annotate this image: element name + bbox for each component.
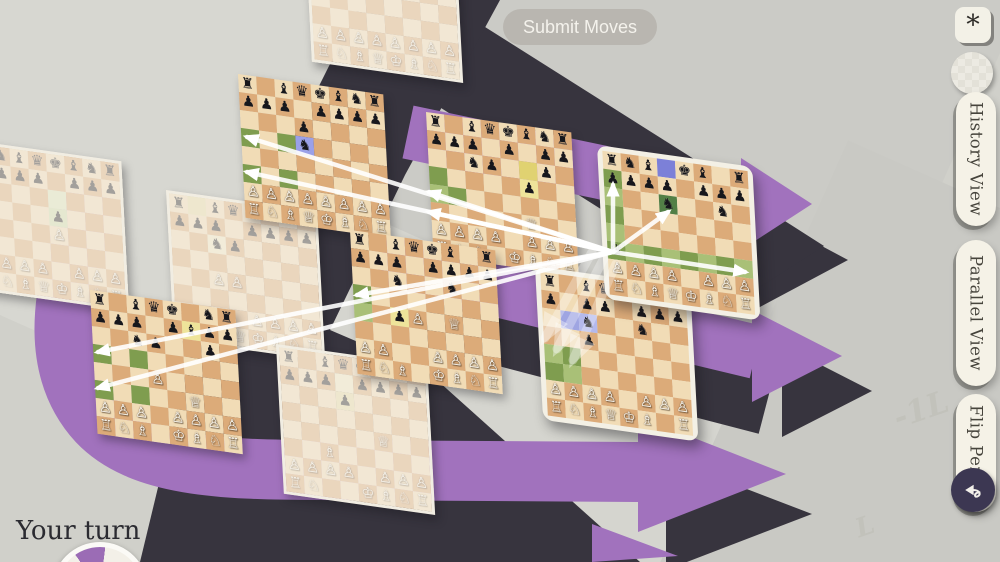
white-piece[interactable]: ♙ xyxy=(485,358,499,374)
black-piece[interactable]: ♜ xyxy=(103,163,117,179)
black-piece[interactable]: ♟ xyxy=(444,263,458,279)
white-piece[interactable]: ♙ xyxy=(287,457,301,473)
board-square[interactable] xyxy=(0,218,14,239)
black-piece[interactable]: ♟ xyxy=(582,333,596,349)
white-piece[interactable]: ♙ xyxy=(720,276,734,292)
white-piece[interactable]: ♙ xyxy=(324,462,338,478)
black-piece[interactable]: ♞ xyxy=(350,91,364,107)
chess-board[interactable]: ♜♝♛♚♞♜♟♟♟♟♝♟♟♞♟♟♙♕♙♙♙♙♙♙♙♖♘♗♔♗♘♖ xyxy=(90,290,243,454)
white-piece[interactable]: ♗ xyxy=(323,445,337,461)
white-piece[interactable]: ♙ xyxy=(207,415,221,431)
board-square[interactable]: ♗ xyxy=(71,282,90,303)
board-square[interactable]: ♖ xyxy=(357,356,376,377)
chess-board[interactable]: ♜♝♛♚♝♞♜♟♟♟♟♟♟♟♟♞♙♙♙♙♙♙♙♙♖♘♗♕♔♗♘♖ xyxy=(238,74,391,238)
white-piece[interactable]: ♗ xyxy=(526,253,540,269)
white-piece[interactable]: ♙ xyxy=(647,266,661,282)
white-piece[interactable]: ♙ xyxy=(424,41,438,57)
white-piece[interactable]: ♖ xyxy=(444,61,458,77)
white-piece[interactable]: ♘ xyxy=(720,294,734,310)
white-piece[interactable]: ♕ xyxy=(371,51,385,67)
black-piece[interactable]: ♜ xyxy=(480,250,494,266)
black-piece[interactable]: ♟ xyxy=(598,299,612,315)
black-piece[interactable]: ♝ xyxy=(129,297,143,313)
board-square[interactable]: ♕ xyxy=(663,284,682,305)
white-piece[interactable]: ♘ xyxy=(1,274,15,290)
black-piece[interactable]: ♜ xyxy=(93,292,107,308)
white-piece[interactable]: ♗ xyxy=(73,284,87,300)
black-piece[interactable]: ♛ xyxy=(147,300,161,316)
white-piece[interactable]: ♙ xyxy=(471,227,485,243)
black-piece[interactable]: ♚ xyxy=(313,86,327,102)
black-piece[interactable]: ♚ xyxy=(165,302,179,318)
black-piece[interactable]: ♟ xyxy=(203,325,217,341)
white-piece[interactable]: ♗ xyxy=(136,423,150,439)
white-piece[interactable]: ♖ xyxy=(612,279,626,295)
black-piece[interactable]: ♟ xyxy=(466,137,480,153)
black-piece[interactable]: ♟ xyxy=(448,135,462,151)
white-piece[interactable]: ♕ xyxy=(604,407,618,423)
parallel-view-button[interactable]: Parallel View xyxy=(956,240,996,386)
board-square[interactable]: ♖ xyxy=(674,415,693,436)
white-piece[interactable]: ♙ xyxy=(171,410,185,426)
black-piece[interactable]: ♜ xyxy=(543,274,557,290)
black-piece[interactable]: ♝ xyxy=(67,158,81,174)
white-piece[interactable]: ♙ xyxy=(585,387,599,403)
black-piece[interactable]: ♜ xyxy=(220,310,234,326)
board-square[interactable]: ♖ xyxy=(413,491,432,512)
white-piece[interactable]: ♙ xyxy=(665,268,679,284)
white-piece[interactable]: ♕ xyxy=(447,317,461,333)
black-piece[interactable]: ♚ xyxy=(48,156,62,172)
black-piece[interactable]: ♟ xyxy=(283,367,297,383)
black-piece[interactable]: ♟ xyxy=(338,393,352,409)
black-piece[interactable]: ♞ xyxy=(0,148,8,164)
white-piece[interactable]: ♙ xyxy=(701,273,715,289)
white-piece[interactable]: ♙ xyxy=(411,312,425,328)
board-square[interactable]: ♘ xyxy=(565,400,584,421)
white-piece[interactable]: ♙ xyxy=(36,261,50,277)
black-piece[interactable]: ♟ xyxy=(242,94,256,110)
black-piece[interactable]: ♜ xyxy=(172,196,186,212)
white-piece[interactable]: ♙ xyxy=(98,400,112,416)
white-piece[interactable]: ♙ xyxy=(629,263,643,279)
white-piece[interactable]: ♙ xyxy=(543,237,557,253)
white-piece[interactable]: ♙ xyxy=(246,184,260,200)
white-piece[interactable]: ♙ xyxy=(567,384,581,400)
black-piece[interactable]: ♟ xyxy=(653,307,667,323)
board-square[interactable]: ♔ xyxy=(317,210,336,231)
history-view-button[interactable]: History View xyxy=(956,92,996,226)
white-piece[interactable]: ♙ xyxy=(305,321,319,337)
black-piece[interactable]: ♟ xyxy=(522,181,536,197)
board-square[interactable]: ♗ xyxy=(133,421,152,442)
white-piece[interactable]: ♔ xyxy=(320,212,334,228)
board-square[interactable]: ♘ xyxy=(466,371,485,392)
black-piece[interactable]: ♟ xyxy=(301,370,315,386)
white-piece[interactable]: ♙ xyxy=(301,192,315,208)
black-piece[interactable]: ♝ xyxy=(519,127,533,143)
black-piece[interactable]: ♟ xyxy=(733,189,747,205)
black-piece[interactable]: ♝ xyxy=(579,279,593,295)
white-piece[interactable]: ♘ xyxy=(630,281,644,297)
black-piece[interactable]: ♟ xyxy=(463,265,477,281)
board-square[interactable]: ♖ xyxy=(484,374,503,395)
white-piece[interactable]: ♘ xyxy=(117,420,131,436)
board-square[interactable]: ♔ xyxy=(248,329,267,350)
board-square[interactable]: ♘ xyxy=(395,489,414,510)
board-square[interactable]: ♕ xyxy=(601,405,620,426)
black-piece[interactable]: ♟ xyxy=(660,178,674,194)
black-piece[interactable]: ♞ xyxy=(131,333,145,349)
white-piece[interactable]: ♔ xyxy=(55,282,69,298)
black-piece[interactable]: ♟ xyxy=(245,224,259,240)
board-square[interactable]: ♗ xyxy=(281,205,300,226)
black-piece[interactable]: ♟ xyxy=(191,216,205,232)
black-piece[interactable]: ♟ xyxy=(314,104,328,120)
white-piece[interactable]: ♖ xyxy=(486,376,500,392)
black-piece[interactable]: ♞ xyxy=(210,237,224,253)
black-piece[interactable]: ♟ xyxy=(354,250,368,266)
white-piece[interactable]: ♙ xyxy=(658,397,672,413)
board-square[interactable]: ♘ xyxy=(0,272,17,293)
black-piece[interactable]: ♟ xyxy=(0,166,9,182)
black-piece[interactable]: ♟ xyxy=(166,320,180,336)
white-piece[interactable]: ♔ xyxy=(684,289,698,305)
white-piece[interactable]: ♙ xyxy=(452,225,466,241)
board-square[interactable]: ♘ xyxy=(304,476,323,497)
white-piece[interactable]: ♙ xyxy=(337,197,351,213)
white-piece[interactable]: ♘ xyxy=(265,204,279,220)
black-piece[interactable]: ♟ xyxy=(557,150,571,166)
white-piece[interactable]: ♙ xyxy=(72,266,86,282)
board-square[interactable]: ♗ xyxy=(187,429,206,450)
board-square[interactable]: ♙ xyxy=(0,254,16,275)
white-piece[interactable]: ♗ xyxy=(379,488,393,504)
white-piece[interactable]: ♙ xyxy=(334,28,348,44)
white-piece[interactable]: ♘ xyxy=(307,478,321,494)
board-square[interactable]: ♕ xyxy=(299,207,318,228)
black-piece[interactable]: ♟ xyxy=(392,383,406,399)
black-piece[interactable]: ♟ xyxy=(580,297,594,313)
board-square[interactable]: ♘ xyxy=(423,57,442,78)
black-piece[interactable]: ♞ xyxy=(636,323,650,339)
board-square[interactable]: ♖ xyxy=(245,200,264,221)
black-piece[interactable]: ♞ xyxy=(85,161,99,177)
black-piece[interactable]: ♚ xyxy=(678,163,692,179)
white-piece[interactable]: ♗ xyxy=(450,371,464,387)
checker-circle-button[interactable] xyxy=(951,52,993,94)
black-piece[interactable]: ♝ xyxy=(389,237,403,253)
white-piece[interactable]: ♙ xyxy=(373,202,387,218)
black-piece[interactable]: ♟ xyxy=(203,343,217,359)
black-piece[interactable]: ♞ xyxy=(581,315,595,331)
black-piece[interactable]: ♚ xyxy=(425,242,439,258)
board-square[interactable]: ♔ xyxy=(620,408,639,429)
white-piece[interactable]: ♙ xyxy=(151,372,165,388)
white-piece[interactable]: ♙ xyxy=(315,25,329,41)
black-piece[interactable]: ♛ xyxy=(30,153,44,169)
black-piece[interactable]: ♜ xyxy=(429,114,443,130)
white-piece[interactable]: ♙ xyxy=(449,353,463,369)
black-piece[interactable]: ♟ xyxy=(104,181,118,197)
black-piece[interactable]: ♟ xyxy=(355,378,369,394)
black-piece[interactable]: ♝ xyxy=(465,119,479,135)
black-piece[interactable]: ♟ xyxy=(332,107,346,123)
white-piece[interactable]: ♙ xyxy=(283,189,297,205)
black-piece[interactable]: ♟ xyxy=(642,176,656,192)
white-piece[interactable]: ♙ xyxy=(396,473,410,489)
black-piece[interactable]: ♟ xyxy=(624,173,638,189)
black-piece[interactable]: ♜ xyxy=(732,171,746,187)
white-piece[interactable]: ♙ xyxy=(355,199,369,215)
white-piece[interactable]: ♙ xyxy=(0,256,13,272)
board-square[interactable]: ♗ xyxy=(350,46,369,67)
submit-moves-button[interactable]: Submit Moves xyxy=(503,9,657,45)
board-square[interactable]: ♔ xyxy=(52,279,71,300)
black-piece[interactable]: ♞ xyxy=(391,273,405,289)
board-square[interactable]: ♗ xyxy=(638,410,657,431)
white-piece[interactable]: ♖ xyxy=(226,436,240,452)
white-piece[interactable]: ♗ xyxy=(702,291,716,307)
black-piece[interactable]: ♛ xyxy=(407,240,421,256)
board-square[interactable]: ♗ xyxy=(377,486,396,507)
white-piece[interactable]: ♙ xyxy=(319,194,333,210)
board-square[interactable]: ♗ xyxy=(405,54,424,75)
black-piece[interactable]: ♟ xyxy=(260,97,274,113)
board-square[interactable] xyxy=(656,413,675,434)
board-square[interactable] xyxy=(340,481,359,502)
white-piece[interactable]: ♗ xyxy=(19,276,33,292)
white-piece[interactable]: ♙ xyxy=(342,465,356,481)
white-piece[interactable]: ♙ xyxy=(212,273,226,289)
white-piece[interactable]: ♔ xyxy=(361,486,375,502)
black-piece[interactable]: ♟ xyxy=(544,292,558,308)
board-square[interactable]: ♘ xyxy=(718,292,737,313)
board-square[interactable]: ♔ xyxy=(505,248,524,269)
white-piece[interactable]: ♙ xyxy=(306,460,320,476)
black-piece[interactable]: ♛ xyxy=(483,122,497,138)
board-square[interactable]: ♗ xyxy=(700,289,719,310)
board-square[interactable]: ♘ xyxy=(115,418,134,439)
board-square[interactable]: ♖ xyxy=(441,59,460,80)
white-piece[interactable]: ♗ xyxy=(396,363,410,379)
white-piece[interactable]: ♗ xyxy=(338,215,352,231)
white-piece[interactable]: ♗ xyxy=(648,284,662,300)
black-piece[interactable]: ♞ xyxy=(298,138,312,154)
board-square[interactable] xyxy=(322,478,341,499)
black-piece[interactable]: ♟ xyxy=(430,132,444,148)
menu-asterisk-button[interactable]: * xyxy=(955,7,991,43)
black-piece[interactable]: ♜ xyxy=(368,94,382,110)
black-piece[interactable]: ♞ xyxy=(661,196,675,212)
board-square[interactable] xyxy=(0,236,15,257)
black-piece[interactable]: ♟ xyxy=(149,336,163,352)
white-piece[interactable]: ♗ xyxy=(586,405,600,421)
white-piece[interactable]: ♖ xyxy=(288,475,302,491)
black-piece[interactable]: ♞ xyxy=(716,204,730,220)
white-piece[interactable]: ♖ xyxy=(739,296,753,312)
board-square[interactable]: ♖ xyxy=(97,416,116,437)
black-piece[interactable]: ♜ xyxy=(241,76,255,92)
white-piece[interactable]: ♙ xyxy=(370,33,384,49)
black-piece[interactable]: ♟ xyxy=(369,112,383,128)
board-square[interactable]: ♖ xyxy=(286,473,305,494)
white-piece[interactable]: ♙ xyxy=(230,275,244,291)
white-piece[interactable]: ♗ xyxy=(407,56,421,72)
white-piece[interactable]: ♕ xyxy=(666,286,680,302)
black-piece[interactable]: ♟ xyxy=(282,229,296,245)
white-piece[interactable]: ♙ xyxy=(639,394,653,410)
black-piece[interactable]: ♝ xyxy=(641,158,655,174)
white-piece[interactable]: ♔ xyxy=(622,410,636,426)
black-piece[interactable]: ♟ xyxy=(94,310,108,326)
black-piece[interactable]: ♚ xyxy=(501,124,515,140)
white-piece[interactable]: ♙ xyxy=(225,418,239,434)
white-piece[interactable]: ♘ xyxy=(335,46,349,62)
board-square[interactable]: ♖ xyxy=(547,398,566,419)
black-piece[interactable]: ♟ xyxy=(481,268,495,284)
white-piece[interactable]: ♙ xyxy=(406,38,420,54)
white-piece[interactable]: ♙ xyxy=(415,475,429,491)
black-piece[interactable]: ♟ xyxy=(297,120,311,136)
black-piece[interactable]: ♟ xyxy=(715,186,729,202)
white-piece[interactable]: ♙ xyxy=(376,343,390,359)
white-piece[interactable]: ♙ xyxy=(611,261,625,277)
black-piece[interactable]: ♟ xyxy=(13,169,27,185)
white-piece[interactable]: ♙ xyxy=(434,222,448,238)
white-piece[interactable]: ♔ xyxy=(508,250,522,266)
black-piece[interactable]: ♟ xyxy=(671,310,685,326)
black-piece[interactable]: ♟ xyxy=(351,109,365,125)
white-piece[interactable]: ♙ xyxy=(676,400,690,416)
black-piece[interactable]: ♟ xyxy=(130,315,144,331)
white-piece[interactable]: ♙ xyxy=(603,389,617,405)
black-piece[interactable]: ♝ xyxy=(208,201,222,217)
white-piece[interactable]: ♙ xyxy=(561,240,575,256)
board-square[interactable]: ♗ xyxy=(583,403,602,424)
black-piece[interactable]: ♟ xyxy=(635,305,649,321)
white-piece[interactable]: ♖ xyxy=(550,400,564,416)
board-square[interactable]: ♘ xyxy=(627,279,646,300)
black-piece[interactable]: ♟ xyxy=(393,309,407,325)
black-piece[interactable]: ♜ xyxy=(282,350,296,366)
board-square[interactable]: ♕ xyxy=(368,49,387,70)
black-piece[interactable]: ♝ xyxy=(331,89,345,105)
board-square[interactable]: ♘ xyxy=(206,431,225,452)
black-piece[interactable]: ♞ xyxy=(623,155,637,171)
board-square[interactable]: ♘ xyxy=(332,44,351,65)
black-piece[interactable]: ♛ xyxy=(336,357,350,373)
white-piece[interactable]: ♖ xyxy=(316,43,330,59)
black-piece[interactable]: ♞ xyxy=(467,155,481,171)
black-piece[interactable]: ♝ xyxy=(12,151,26,167)
white-piece[interactable]: ♖ xyxy=(247,202,261,218)
board-square[interactable]: ♗ xyxy=(16,274,35,295)
white-piece[interactable]: ♘ xyxy=(568,402,582,418)
board-square[interactable]: ♔ xyxy=(358,483,377,504)
white-piece[interactable]: ♙ xyxy=(352,30,366,46)
black-piece[interactable]: ♞ xyxy=(445,281,459,297)
chess-board-past[interactable]: ♜♞♝♛♚♝♞♜♟♟♟♟♟♟♟♟♙♙♙♙♙♙♙♙♖♘♗♕♔♗♘♖ xyxy=(0,140,129,311)
black-piece[interactable]: ♟ xyxy=(606,171,620,187)
black-piece[interactable]: ♟ xyxy=(31,171,45,187)
board-square[interactable] xyxy=(411,363,430,384)
white-piece[interactable]: ♙ xyxy=(286,319,300,335)
white-piece[interactable]: ♖ xyxy=(416,493,430,509)
black-piece[interactable]: ♝ xyxy=(318,355,332,371)
black-piece[interactable]: ♜ xyxy=(605,153,619,169)
board-square[interactable]: ♗ xyxy=(393,361,412,382)
black-piece[interactable]: ♟ xyxy=(697,184,711,200)
white-piece[interactable]: ♘ xyxy=(425,59,439,75)
board-square[interactable]: ♖ xyxy=(314,41,333,62)
white-piece[interactable]: ♙ xyxy=(431,350,445,366)
chess-board[interactable]: ♜♝♛♚♝♜♟♟♟♟♟♟♟♞♞♟♙♕♙♙♙♙♙♙♖♘♗♔♗♘♖ xyxy=(350,230,503,394)
black-piece[interactable]: ♟ xyxy=(539,147,553,163)
board-square[interactable]: ♕ xyxy=(34,277,53,298)
black-piece[interactable]: ♟ xyxy=(502,142,516,158)
white-piece[interactable]: ♙ xyxy=(467,355,481,371)
black-piece[interactable]: ♞ xyxy=(538,129,552,145)
black-piece[interactable]: ♛ xyxy=(610,243,624,259)
board-square[interactable]: ♖ xyxy=(224,434,243,455)
white-piece[interactable]: ♘ xyxy=(377,360,391,376)
white-piece[interactable]: ♙ xyxy=(549,382,563,398)
black-piece[interactable]: ♟ xyxy=(372,253,386,269)
black-piece[interactable]: ♟ xyxy=(278,99,292,115)
white-piece[interactable]: ♕ xyxy=(188,395,202,411)
black-piece[interactable]: ♟ xyxy=(173,213,187,229)
white-piece[interactable]: ♙ xyxy=(268,316,282,332)
white-piece[interactable]: ♙ xyxy=(90,269,104,285)
white-piece[interactable]: ♕ xyxy=(524,217,538,233)
black-piece[interactable]: ♟ xyxy=(209,219,223,235)
black-piece[interactable]: ♟ xyxy=(539,165,553,181)
white-piece[interactable]: ♙ xyxy=(264,187,278,203)
white-piece[interactable]: ♕ xyxy=(37,279,51,295)
white-piece[interactable]: ♙ xyxy=(738,279,752,295)
black-piece[interactable]: ♝ xyxy=(184,323,198,339)
board-square[interactable]: ♗ xyxy=(447,369,466,390)
white-piece[interactable]: ♔ xyxy=(172,428,186,444)
black-piece[interactable]: ♟ xyxy=(374,380,388,396)
white-piece[interactable]: ♘ xyxy=(468,373,482,389)
black-piece[interactable]: ♞ xyxy=(202,307,216,323)
black-piece[interactable]: ♟ xyxy=(485,158,499,174)
white-piece[interactable]: ♙ xyxy=(443,43,457,59)
black-piece[interactable]: ♛ xyxy=(226,203,240,219)
black-piece[interactable]: ♟ xyxy=(264,226,278,242)
black-piece[interactable]: ♟ xyxy=(221,328,235,344)
black-piece[interactable]: ♟ xyxy=(68,176,82,192)
board-square[interactable]: ♖ xyxy=(736,294,755,315)
white-piece[interactable]: ♙ xyxy=(109,271,123,287)
white-piece[interactable]: ♘ xyxy=(208,433,222,449)
white-piece[interactable]: ♔ xyxy=(432,368,446,384)
white-piece[interactable]: ♙ xyxy=(135,405,149,421)
black-piece[interactable]: ♟ xyxy=(426,260,440,276)
white-piece[interactable]: ♗ xyxy=(640,412,654,428)
black-piece[interactable]: ♝ xyxy=(277,81,291,97)
white-piece[interactable]: ♙ xyxy=(489,230,503,246)
black-piece[interactable]: ♝ xyxy=(696,166,710,182)
board-square[interactable]: ♔ xyxy=(386,51,405,72)
board-square[interactable]: ♖ xyxy=(609,277,628,298)
white-piece[interactable]: ♕ xyxy=(376,434,390,450)
black-piece[interactable]: ♟ xyxy=(300,231,314,247)
black-piece[interactable]: ♛ xyxy=(295,84,309,100)
black-piece[interactable]: ♟ xyxy=(51,210,65,226)
